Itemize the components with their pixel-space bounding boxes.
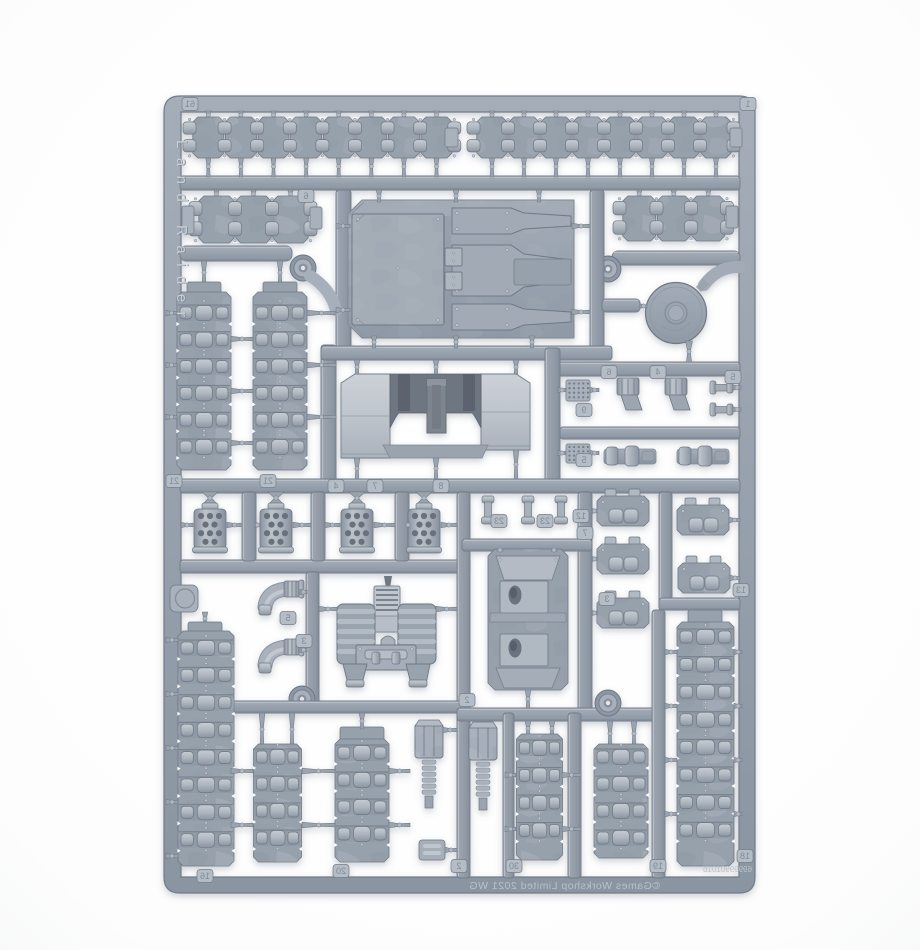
svg-text:8: 8: [438, 481, 443, 491]
svg-text:61: 61: [185, 99, 195, 109]
svg-text:30: 30: [509, 861, 519, 871]
svg-text:21: 21: [169, 476, 179, 486]
svg-text:20: 20: [336, 866, 346, 876]
svg-text:Land Raider: Land Raider: [173, 140, 190, 326]
svg-text:5: 5: [285, 613, 290, 623]
svg-text:2: 2: [456, 861, 461, 871]
svg-text:4: 4: [655, 367, 660, 377]
svg-text:5: 5: [581, 455, 586, 465]
svg-text:9: 9: [581, 405, 586, 415]
svg-text:23: 23: [540, 516, 550, 526]
svg-text:16: 16: [200, 871, 210, 881]
svg-text:©Games Workshop Limited 2021: ©Games Workshop Limited 2021 WG: [469, 880, 660, 892]
svg-text:13: 13: [736, 585, 746, 595]
svg-text:3: 3: [604, 594, 609, 604]
svg-text:6: 6: [606, 367, 611, 377]
svg-text:19: 19: [653, 861, 663, 871]
svg-text:6: 6: [303, 191, 308, 201]
svg-text:5: 5: [730, 372, 735, 382]
svg-text:6999990101b: 6999990101b: [703, 865, 752, 874]
svg-text:23: 23: [494, 516, 504, 526]
svg-text:12: 12: [576, 511, 586, 521]
svg-text:7: 7: [372, 481, 377, 491]
svg-text:4: 4: [333, 481, 338, 491]
svg-text:21: 21: [263, 476, 273, 486]
svg-text:18: 18: [740, 851, 750, 861]
svg-text:1: 1: [745, 99, 750, 109]
svg-text:2: 2: [464, 695, 469, 705]
svg-text:7: 7: [582, 528, 587, 538]
svg-text:3: 3: [301, 636, 306, 646]
